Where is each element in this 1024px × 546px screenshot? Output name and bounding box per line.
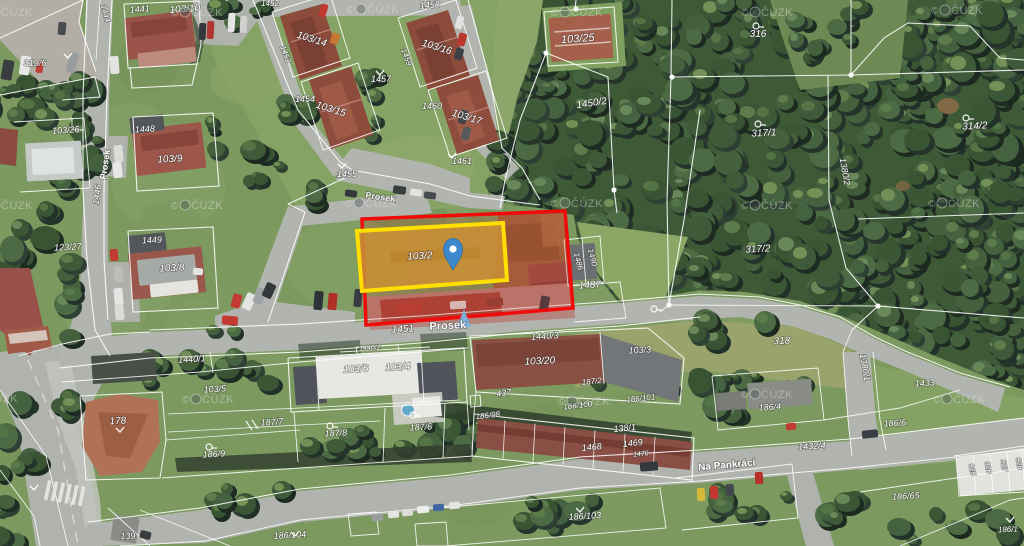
svg-text:1452: 1452 <box>261 0 279 8</box>
svg-text:316: 316 <box>750 29 767 40</box>
svg-text:ČÚZK: ČÚZK <box>761 199 793 212</box>
svg-text:186/103: 186/103 <box>568 510 601 522</box>
svg-text:1440/2: 1440/2 <box>359 344 381 352</box>
svg-text:139: 139 <box>120 531 136 542</box>
svg-text:319/6: 319/6 <box>24 58 47 68</box>
svg-text:ČÚZK: ČÚZK <box>1 6 33 19</box>
svg-text:187/6: 187/6 <box>409 421 432 432</box>
svg-text:ČÚZK: ČÚZK <box>571 197 603 210</box>
svg-text:ČÚZK: ČÚZK <box>191 199 223 212</box>
svg-text:318: 318 <box>773 336 791 348</box>
svg-text:187/8: 187/8 <box>324 427 347 438</box>
svg-text:1448: 1448 <box>135 123 156 134</box>
svg-text:ČÚZK: ČÚZK <box>367 3 399 16</box>
svg-text:ČÚZK: ČÚZK <box>365 197 397 210</box>
svg-text:103/4: 103/4 <box>385 361 411 373</box>
svg-text:ČÚZK: ČÚZK <box>1 199 33 212</box>
svg-text:ČÚZK: ČÚZK <box>951 4 983 17</box>
svg-text:317/1: 317/1 <box>751 127 777 139</box>
svg-text:1457: 1457 <box>371 74 392 84</box>
svg-text:©: © <box>558 397 566 408</box>
svg-text:©: © <box>928 199 936 210</box>
svg-text:©: © <box>933 395 941 406</box>
svg-text:103/3: 103/3 <box>628 344 651 355</box>
svg-text:186/6: 186/6 <box>883 417 906 428</box>
svg-text:©: © <box>345 199 353 210</box>
svg-text:©: © <box>171 8 179 19</box>
svg-text:ČÚZK: ČÚZK <box>578 395 610 408</box>
svg-text:103/20: 103/20 <box>524 355 556 368</box>
svg-text:103/25: 103/25 <box>561 32 596 46</box>
svg-text:103/8: 103/8 <box>159 262 185 274</box>
svg-text:186/104: 186/104 <box>273 529 306 541</box>
svg-text:103/26: 103/26 <box>52 124 80 135</box>
svg-text:ČÚZK: ČÚZK <box>948 197 980 210</box>
svg-text:103/9: 103/9 <box>157 153 183 165</box>
svg-text:178: 178 <box>109 416 127 428</box>
svg-text:186/4: 186/4 <box>758 401 781 412</box>
svg-text:317/2: 317/2 <box>745 243 771 255</box>
svg-text:©: © <box>171 201 179 212</box>
svg-text:ČÚZK: ČÚZK <box>761 388 793 401</box>
svg-text:ČÚZK: ČÚZK <box>191 6 223 19</box>
svg-text:187/7: 187/7 <box>260 416 284 427</box>
svg-text:©: © <box>741 201 749 212</box>
svg-text:1468: 1468 <box>581 441 602 453</box>
svg-text:©: © <box>551 199 559 210</box>
svg-text:ČÚZK: ČÚZK <box>761 6 793 19</box>
svg-text:1451: 1451 <box>391 323 414 335</box>
svg-text:437: 437 <box>496 387 513 399</box>
svg-text:123/27: 123/27 <box>54 241 83 252</box>
svg-text:186/1: 186/1 <box>998 524 1018 534</box>
svg-text:1440/1: 1440/1 <box>178 353 206 364</box>
svg-text:1455: 1455 <box>337 169 358 179</box>
svg-text:ČÚZK: ČÚZK <box>953 393 985 406</box>
svg-text:1469: 1469 <box>622 437 643 449</box>
svg-text:1440/3: 1440/3 <box>531 330 559 341</box>
svg-text:186/9: 186/9 <box>202 448 225 459</box>
svg-text:103/5: 103/5 <box>203 383 227 394</box>
svg-text:1449: 1449 <box>142 234 163 245</box>
svg-text:314/2: 314/2 <box>962 120 988 132</box>
svg-text:ČÚZK: ČÚZK <box>0 392 18 405</box>
svg-text:1432/4: 1432/4 <box>798 440 826 451</box>
svg-text:©: © <box>931 6 939 17</box>
svg-text:1433: 1433 <box>915 377 936 388</box>
svg-text:©: © <box>741 8 749 19</box>
svg-text:1454: 1454 <box>295 94 315 104</box>
svg-text:©: © <box>347 5 355 16</box>
svg-text:186/65: 186/65 <box>892 490 921 501</box>
svg-text:1460: 1460 <box>422 101 442 111</box>
svg-text:103/6: 103/6 <box>343 363 369 375</box>
svg-text:1441: 1441 <box>129 3 150 14</box>
svg-text:1487: 1487 <box>578 279 601 291</box>
svg-text:ČÚZK: ČÚZK <box>571 6 603 19</box>
svg-text:1461: 1461 <box>452 156 472 166</box>
svg-text:©: © <box>182 395 190 406</box>
svg-text:Prosek: Prosek <box>429 319 467 333</box>
svg-text:ČÚZK: ČÚZK <box>202 393 234 406</box>
svg-text:103/2: 103/2 <box>407 250 433 262</box>
svg-text:©: © <box>741 390 749 401</box>
svg-text:1458: 1458 <box>419 0 440 11</box>
svg-text:©: © <box>551 8 559 19</box>
